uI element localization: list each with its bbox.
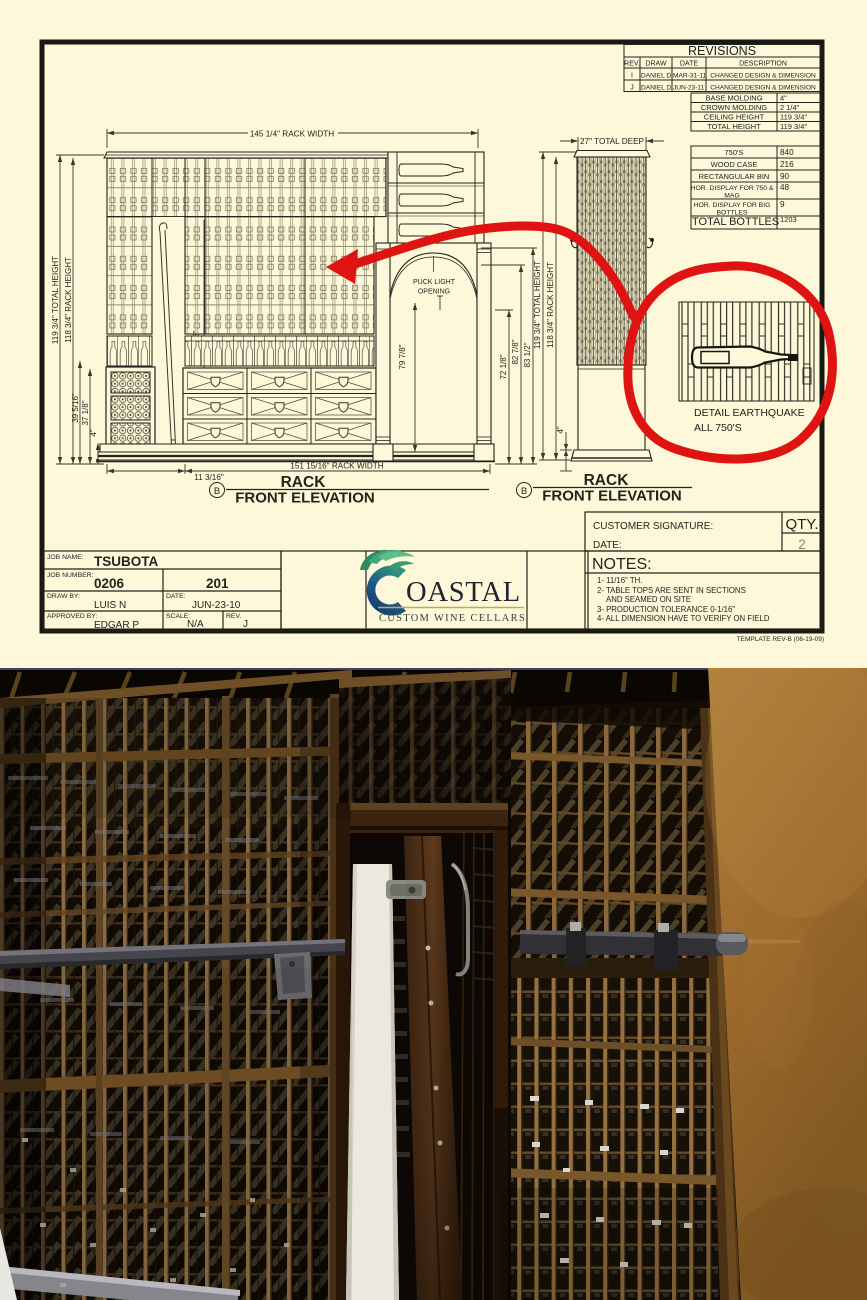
svg-text:DATE: DATE xyxy=(680,61,698,68)
svg-text:HOR. DISPLAY FOR 750 &: HOR. DISPLAY FOR 750 & xyxy=(691,185,774,192)
svg-text:DATE:: DATE: xyxy=(593,540,622,551)
svg-text:1- 11/16" TH.: 1- 11/16" TH. xyxy=(597,576,642,585)
svg-text:11 3/16": 11 3/16" xyxy=(194,473,224,482)
svg-text:MAR-31-11: MAR-31-11 xyxy=(673,73,707,80)
svg-text:J: J xyxy=(243,619,248,630)
svg-text:9: 9 xyxy=(780,200,785,209)
svg-text:DANIEL D: DANIEL D xyxy=(641,73,671,80)
svg-text:2 1/4": 2 1/4" xyxy=(780,103,800,112)
svg-text:119 3/4": 119 3/4" xyxy=(780,113,807,122)
svg-text:I: I xyxy=(631,73,633,80)
svg-text:RACK: RACK xyxy=(281,474,327,491)
svg-text:83 1/2": 83 1/2" xyxy=(523,342,532,367)
svg-text:APPROVED BY:: APPROVED BY: xyxy=(47,613,97,620)
svg-text:NOTES:: NOTES: xyxy=(592,556,652,573)
svg-text:118 3/4" RACK HEIGHT: 118 3/4" RACK HEIGHT xyxy=(546,262,555,348)
svg-text:119 3/4" TOTAL HEIGHT: 119 3/4" TOTAL HEIGHT xyxy=(51,256,60,344)
svg-text:27" TOTAL DEEP: 27" TOTAL DEEP xyxy=(580,137,645,146)
svg-text:OPENING: OPENING xyxy=(418,289,450,296)
svg-text:CUSTOMER SIGNATURE:: CUSTOMER SIGNATURE: xyxy=(593,521,713,532)
svg-text:DRAW: DRAW xyxy=(645,61,667,68)
svg-text:BASE MOLDING: BASE MOLDING xyxy=(705,94,762,103)
svg-text:FRONT ELEVATION: FRONT ELEVATION xyxy=(542,488,681,505)
svg-text:RACK: RACK xyxy=(584,472,630,489)
svg-text:DESCRIPTION: DESCRIPTION xyxy=(739,61,787,68)
svg-text:48: 48 xyxy=(780,183,790,192)
svg-text:4": 4" xyxy=(780,94,787,103)
svg-text:QTY.: QTY. xyxy=(785,516,818,533)
svg-text:ALL 750'S: ALL 750'S xyxy=(694,422,742,434)
svg-text:LUIS N: LUIS N xyxy=(94,600,126,611)
svg-text:118 3/4" RACK HEIGHT: 118 3/4" RACK HEIGHT xyxy=(64,257,73,343)
svg-text:TSUBOTA: TSUBOTA xyxy=(94,554,158,569)
svg-text:OASTAL: OASTAL xyxy=(406,577,521,608)
svg-text:JOB NAME:: JOB NAME: xyxy=(47,554,84,561)
svg-text:4": 4" xyxy=(89,429,98,436)
svg-text:DATE:: DATE: xyxy=(166,593,186,600)
svg-text:CROWN MOLDING: CROWN MOLDING xyxy=(701,103,767,112)
svg-text:RECTANGULAR BIN: RECTANGULAR BIN xyxy=(699,172,770,181)
svg-text:PUCK LIGHT: PUCK LIGHT xyxy=(413,279,456,286)
svg-text:CHANGED DESIGN & DIMENSION: CHANGED DESIGN & DIMENSION xyxy=(710,73,816,80)
svg-text:DANIEL D: DANIEL D xyxy=(641,85,671,92)
svg-text:REV.: REV. xyxy=(624,61,640,68)
svg-text:REVISIONS: REVISIONS xyxy=(688,44,756,58)
svg-text:840: 840 xyxy=(780,148,794,157)
svg-text:119 3/4": 119 3/4" xyxy=(780,122,807,131)
svg-text:AND SEAMED ON SITE: AND SEAMED ON SITE xyxy=(606,595,691,604)
svg-text:4- ALL DIMENSION HAVE TO VERI: 4- ALL DIMENSION HAVE TO VERIFY ON FIELD xyxy=(597,614,770,623)
svg-text:750'S: 750'S xyxy=(725,148,744,157)
svg-text:37 1/8": 37 1/8" xyxy=(81,400,90,425)
svg-text:B: B xyxy=(214,486,220,497)
svg-text:CHANGED DESIGN & DIMENSION: CHANGED DESIGN & DIMENSION xyxy=(710,85,816,92)
svg-text:151 15/16" RACK WIDTH: 151 15/16" RACK WIDTH xyxy=(290,462,384,471)
svg-text:JUN-23-10: JUN-23-10 xyxy=(192,600,241,611)
svg-text:WOOD CASE: WOOD CASE xyxy=(711,160,758,169)
svg-text:J: J xyxy=(630,85,634,92)
svg-text:90: 90 xyxy=(780,172,790,181)
svg-text:CUSTOM WINE CELLARS: CUSTOM WINE CELLARS xyxy=(379,613,526,624)
svg-text:0206: 0206 xyxy=(94,576,125,591)
svg-text:79 7/8": 79 7/8" xyxy=(398,344,407,369)
svg-text:TEMPLATE REV-B (06-19-09): TEMPLATE REV-B (06-19-09) xyxy=(737,636,824,643)
svg-text:N/A: N/A xyxy=(187,619,204,630)
svg-text:1203: 1203 xyxy=(780,215,797,224)
svg-text:JOB NUMBER:: JOB NUMBER: xyxy=(47,572,94,579)
svg-text:2- TABLE TOPS ARE SENT IN SEC: 2- TABLE TOPS ARE SENT IN SECTIONS xyxy=(597,586,746,595)
svg-text:2: 2 xyxy=(798,536,806,552)
svg-text:TOTAL BOTTLES: TOTAL BOTTLES xyxy=(692,216,779,228)
svg-text:DRAW BY:: DRAW BY: xyxy=(47,593,80,600)
svg-text:B: B xyxy=(521,486,527,497)
svg-text:3- PRODUCTION TOLERANCE 0-1/1: 3- PRODUCTION TOLERANCE 0-1/16" xyxy=(597,605,735,614)
svg-text:HOR. DISPLAY FOR BIG: HOR. DISPLAY FOR BIG xyxy=(694,202,771,209)
svg-text:82 7/8": 82 7/8" xyxy=(511,339,520,364)
svg-text:CEILING HEIGHT: CEILING HEIGHT xyxy=(704,113,765,122)
svg-text:EDGAR P: EDGAR P xyxy=(94,620,139,631)
svg-text:119 3/4" TOTAL HEIGHT: 119 3/4" TOTAL HEIGHT xyxy=(533,261,542,349)
svg-text:TOTAL HEIGHT: TOTAL HEIGHT xyxy=(707,122,761,131)
svg-text:REV.: REV. xyxy=(226,613,241,620)
svg-text:4": 4" xyxy=(556,426,565,433)
svg-text:39 5/16": 39 5/16" xyxy=(71,393,80,423)
svg-text:FRONT ELEVATION: FRONT ELEVATION xyxy=(235,490,374,507)
svg-text:MAG: MAG xyxy=(724,193,739,200)
svg-text:DETAIL EARTHQUAKE: DETAIL EARTHQUAKE xyxy=(694,407,805,419)
svg-text:72 1/8": 72 1/8" xyxy=(499,354,508,379)
svg-text:201: 201 xyxy=(206,576,229,591)
svg-text:JUN-23-11: JUN-23-11 xyxy=(673,85,705,92)
svg-text:145 1/4" RACK WIDTH: 145 1/4" RACK WIDTH xyxy=(250,130,334,139)
svg-text:216: 216 xyxy=(780,160,794,169)
